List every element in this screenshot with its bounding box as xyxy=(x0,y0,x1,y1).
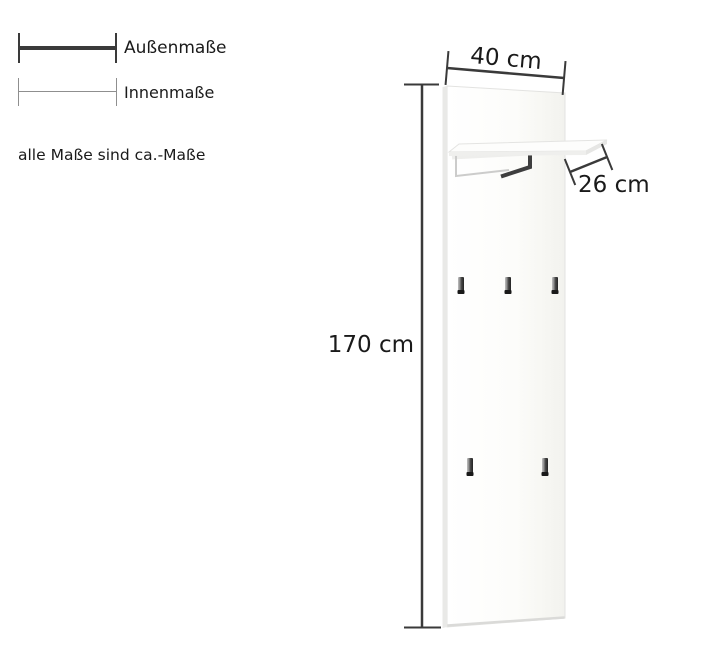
height-dimension: 170 cm xyxy=(328,85,441,629)
dimension-diagram: Außenmaße Innenmaße alle Maße sind ca.-M… xyxy=(0,0,708,667)
coat-hook xyxy=(552,277,559,294)
height-dimension-label: 170 cm xyxy=(328,332,414,358)
dim-tick-near xyxy=(565,159,575,185)
dim-tick-far xyxy=(602,144,612,170)
dim-line xyxy=(570,157,607,172)
panel-front xyxy=(447,86,565,627)
coat-hook xyxy=(467,458,474,476)
depth-dimension-label: 26 cm xyxy=(578,172,650,198)
coat-hook xyxy=(505,277,512,294)
wall-panel xyxy=(443,86,566,628)
coat-hook xyxy=(542,458,549,476)
coat-hook xyxy=(458,277,465,294)
product-diagram: 40 cm 170 cm 26 cm xyxy=(0,0,708,667)
panel-left-edge xyxy=(443,86,448,628)
